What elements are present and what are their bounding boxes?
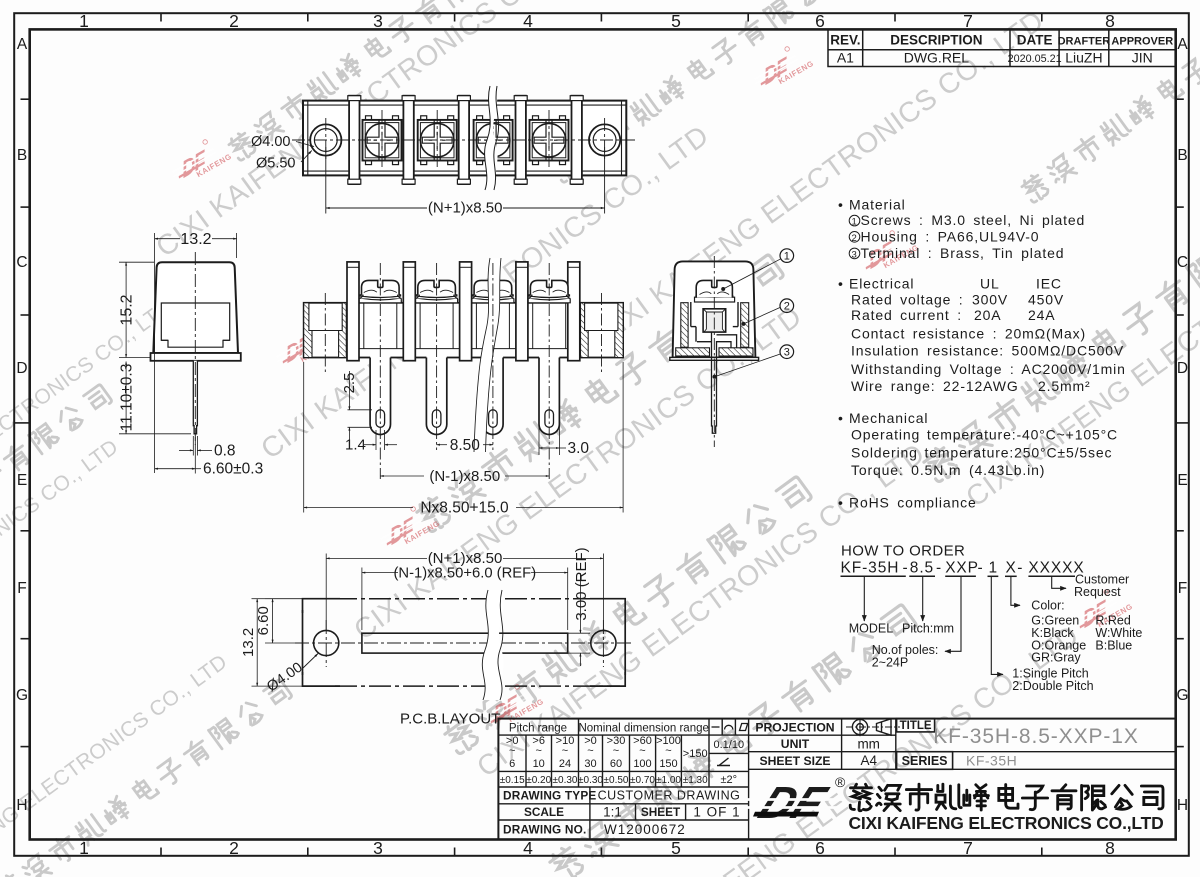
svg-text:XXP: XXP	[945, 560, 979, 577]
svg-text:Ø4.00: Ø4.00	[264, 660, 306, 696]
svg-text:Request: Request	[1074, 585, 1121, 599]
svg-text:~: ~	[665, 745, 671, 757]
svg-text:P.C.B.LAYOUT: P.C.B.LAYOUT	[400, 711, 500, 728]
svg-text:2.5: 2.5	[341, 373, 358, 394]
svg-text:Operating temperature:-40°C~+1: Operating temperature:-40°C~+105°C	[851, 427, 1118, 443]
svg-text:1: 1	[79, 838, 89, 858]
svg-text:1: 1	[79, 11, 89, 31]
svg-text:±0.15: ±0.15	[500, 775, 525, 786]
svg-text:•: •	[838, 410, 844, 426]
svg-text:(N+1)x8.50: (N+1)x8.50	[428, 200, 503, 217]
svg-text:10: 10	[533, 758, 545, 770]
svg-text:2: 2	[229, 11, 239, 31]
svg-text:B: B	[17, 147, 27, 164]
svg-text:5: 5	[671, 11, 681, 31]
svg-text:±0.50: ±0.50	[604, 775, 629, 786]
svg-text:•: •	[838, 494, 844, 510]
svg-text:8: 8	[1105, 838, 1115, 858]
svg-text:8: 8	[1105, 11, 1115, 31]
svg-text:1: 1	[784, 251, 790, 263]
svg-text:CUSTOMER DRAWING: CUSTOMER DRAWING	[598, 789, 741, 803]
svg-text:APPROVER: APPROVER	[1111, 36, 1173, 48]
svg-text:KF-35H-8.5-XXP-1X: KF-35H-8.5-XXP-1X	[933, 725, 1139, 748]
svg-text:G: G	[16, 687, 28, 704]
svg-text:E: E	[17, 472, 27, 489]
svg-text:X: X	[1006, 560, 1017, 577]
svg-text:GR:Gray: GR:Gray	[1031, 651, 1081, 665]
svg-text:2: 2	[784, 301, 790, 313]
svg-text:~: ~	[613, 745, 619, 757]
svg-text:0.1/10: 0.1/10	[714, 739, 745, 751]
svg-text:~: ~	[509, 745, 515, 757]
svg-text:DESCRIPTION: DESCRIPTION	[890, 33, 982, 48]
svg-text:6: 6	[815, 11, 825, 31]
svg-text:PROJECTION: PROJECTION	[755, 721, 834, 735]
svg-text:Contact resistance : 20mΩ(Max): Contact resistance : 20mΩ(Max)	[851, 325, 1086, 341]
svg-text:2~24P: 2~24P	[872, 655, 909, 669]
svg-text:A: A	[1177, 36, 1188, 53]
svg-text:H: H	[16, 797, 27, 814]
svg-text:1:1: 1:1	[603, 805, 622, 820]
svg-text:B:Blue: B:Blue	[1095, 638, 1132, 652]
svg-text:Nominal dimension range: Nominal dimension range	[578, 723, 708, 735]
svg-text:13.2: 13.2	[180, 231, 211, 248]
svg-text:Color:: Color:	[1031, 599, 1064, 613]
svg-text:2: 2	[852, 233, 857, 244]
svg-text:D: D	[16, 360, 27, 377]
svg-text:Soldering temperature:250°C±5/: Soldering temperature:250°C±5/5sec	[851, 444, 1112, 460]
svg-text:~: ~	[639, 745, 645, 757]
svg-text:7: 7	[963, 11, 973, 31]
svg-text:Pitch range: Pitch range	[509, 723, 567, 735]
svg-text:DWG.REL: DWG.REL	[904, 50, 970, 66]
svg-text:UNIT: UNIT	[781, 737, 810, 751]
svg-text:15.2: 15.2	[119, 294, 136, 325]
svg-text:7: 7	[963, 838, 973, 858]
svg-text:30: 30	[584, 758, 596, 770]
svg-text:-: -	[978, 560, 984, 577]
svg-text:8.50: 8.50	[450, 437, 481, 454]
svg-text:60: 60	[610, 758, 622, 770]
svg-text:•: •	[838, 196, 844, 212]
svg-text:3: 3	[784, 347, 790, 359]
svg-text:Ø4.00: Ø4.00	[251, 134, 291, 150]
svg-text:150: 150	[659, 758, 677, 770]
svg-text:8.5: 8.5	[910, 560, 934, 577]
svg-text:6: 6	[509, 758, 515, 770]
svg-text:SHEET SIZE: SHEET SIZE	[759, 754, 830, 768]
svg-text:H: H	[1177, 797, 1188, 814]
svg-text:F: F	[1178, 580, 1187, 597]
svg-text:±0.30: ±0.30	[578, 775, 603, 786]
svg-text:±1.30: ±1.30	[683, 775, 708, 786]
svg-text:KF-35H: KF-35H	[841, 560, 900, 577]
svg-text:Torque: 0.5N.m (4.43Lb.in): Torque: 0.5N.m (4.43Lb.in)	[851, 462, 1045, 478]
svg-text:MODEL: MODEL	[849, 622, 894, 636]
svg-text:1: 1	[989, 560, 999, 577]
svg-text:6.60±0.3: 6.60±0.3	[203, 461, 263, 478]
svg-text:•: •	[838, 275, 844, 291]
svg-text:±1.00: ±1.00	[656, 775, 681, 786]
svg-text:Mechanical: Mechanical	[849, 410, 928, 426]
svg-text:(N-1)x8.50: (N-1)x8.50	[429, 468, 500, 485]
svg-text:HOW TO ORDER: HOW TO ORDER	[841, 543, 965, 560]
svg-text:DATE: DATE	[1017, 33, 1053, 48]
svg-text:G: G	[1176, 687, 1188, 704]
svg-text:(N-1)x8.50+6.0 (REF): (N-1)x8.50+6.0 (REF)	[393, 566, 536, 582]
svg-text:13.2: 13.2	[240, 628, 257, 657]
svg-text:Nx8.50+15.0: Nx8.50+15.0	[420, 500, 509, 517]
svg-text:>150: >150	[683, 748, 708, 760]
svg-text:DRAFTER: DRAFTER	[1058, 36, 1111, 48]
svg-text:1 OF 1: 1 OF 1	[693, 805, 740, 820]
svg-text:24: 24	[559, 758, 571, 770]
svg-text:-: -	[1017, 560, 1023, 577]
svg-text:SERIES: SERIES	[902, 754, 948, 768]
svg-text:2:Double Pitch: 2:Double Pitch	[1012, 679, 1093, 693]
svg-text:A1: A1	[837, 50, 854, 66]
svg-text:CIXI KAIFENG ELECTRONICS CO.,L: CIXI KAIFENG ELECTRONICS CO.,LTD	[848, 813, 1163, 833]
svg-text:Ø5.50: Ø5.50	[256, 156, 296, 172]
svg-text:±0.30: ±0.30	[553, 775, 578, 786]
svg-text:Withstanding Voltage : AC2000V: Withstanding Voltage : AC2000V/1min	[851, 361, 1126, 377]
svg-text:DRAWING NO.: DRAWING NO.	[503, 823, 586, 837]
svg-text:JIN: JIN	[1132, 50, 1153, 66]
svg-text:~: ~	[535, 745, 541, 757]
svg-text:Material: Material	[849, 196, 906, 212]
svg-text:LiuZH: LiuZH	[1065, 50, 1102, 66]
svg-text:±0.20: ±0.20	[526, 775, 551, 786]
svg-text:DRAWING TYPE: DRAWING TYPE	[503, 789, 597, 803]
svg-text:±2°: ±2°	[721, 774, 738, 786]
svg-text:SHEET: SHEET	[641, 805, 681, 819]
svg-text:-: -	[936, 560, 942, 577]
svg-text:100: 100	[633, 758, 651, 770]
svg-text:mm: mm	[857, 736, 880, 751]
svg-text:4: 4	[523, 11, 533, 31]
svg-text:3: 3	[373, 838, 383, 858]
svg-text:SCALE: SCALE	[524, 805, 564, 819]
svg-text:2: 2	[229, 838, 239, 858]
svg-text:2020.05.21: 2020.05.21	[1008, 53, 1062, 65]
svg-text:RoHS compliance: RoHS compliance	[849, 494, 977, 510]
svg-text:Screws : M3.0 steel, Ni plated: Screws : M3.0 steel, Ni plated	[861, 212, 1086, 228]
svg-text:6: 6	[815, 838, 825, 858]
svg-text:±0.70: ±0.70	[630, 775, 655, 786]
svg-text:Rated voltage :300V450V: Rated voltage :300V450V	[851, 292, 1064, 308]
svg-text:~: ~	[562, 745, 568, 757]
svg-text:3: 3	[852, 249, 857, 260]
svg-text:3.00 (REF): 3.00 (REF)	[573, 547, 590, 620]
svg-text:~: ~	[587, 745, 593, 757]
svg-text:W12000672: W12000672	[604, 822, 686, 837]
svg-text:11.10±0.3: 11.10±0.3	[119, 364, 136, 432]
svg-text:4: 4	[523, 838, 533, 858]
svg-text:1.4: 1.4	[345, 437, 366, 454]
svg-text:1: 1	[852, 217, 857, 228]
svg-text:-: -	[903, 560, 909, 577]
svg-text:5: 5	[671, 838, 681, 858]
svg-text:REV.: REV.	[830, 33, 860, 48]
svg-text:B: B	[1177, 147, 1187, 164]
svg-text:E: E	[1177, 472, 1187, 489]
svg-text:KF-35H: KF-35H	[966, 753, 1017, 769]
svg-text:D: D	[1177, 360, 1188, 377]
svg-text:ElectricalULIEC: ElectricalULIEC	[849, 275, 1062, 291]
svg-text:A: A	[17, 36, 28, 53]
svg-text:0.8: 0.8	[214, 443, 236, 460]
svg-text:Rated current :20A24A: Rated current :20A24A	[851, 307, 1055, 323]
svg-text:A4: A4	[860, 753, 877, 768]
svg-text:Insulation resistance: 500MΩ/D: Insulation resistance: 500MΩ/DC500V	[851, 343, 1124, 359]
svg-text:TITLE: TITLE	[900, 720, 932, 732]
svg-text:Terminal : Brass, Tin plated: Terminal : Brass, Tin plated	[861, 245, 1065, 261]
svg-text:®: ®	[835, 774, 846, 790]
svg-text:Wire range: 22-12AWG2.5mm²: Wire range: 22-12AWG2.5mm²	[851, 378, 1091, 394]
svg-text:C: C	[1177, 254, 1188, 271]
svg-text:3.0: 3.0	[568, 440, 590, 457]
svg-text:Pitch:mm: Pitch:mm	[902, 622, 954, 636]
svg-text:3: 3	[373, 11, 383, 31]
svg-text:C: C	[16, 254, 27, 271]
svg-text:Housing : PA66,UL94V-0: Housing : PA66,UL94V-0	[861, 228, 1040, 244]
svg-text:F: F	[17, 580, 26, 597]
